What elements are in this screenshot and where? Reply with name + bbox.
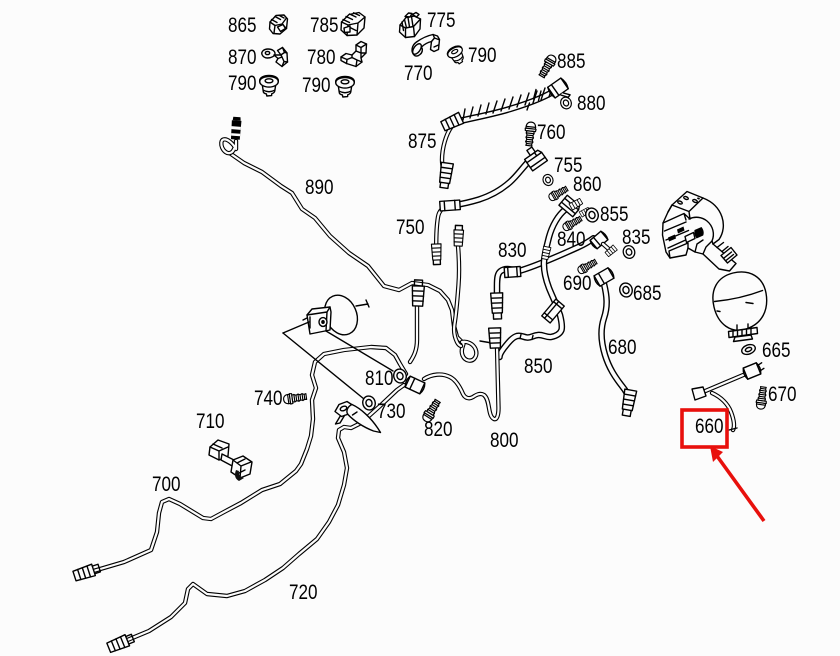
svg-text:890: 890	[305, 175, 334, 199]
svg-text:875: 875	[408, 129, 437, 153]
svg-text:730: 730	[377, 399, 406, 423]
svg-text:665: 665	[762, 338, 791, 362]
svg-text:740: 740	[254, 386, 283, 410]
svg-text:760: 760	[537, 120, 566, 144]
svg-text:790: 790	[228, 71, 257, 95]
svg-text:680: 680	[608, 335, 637, 359]
svg-text:690: 690	[563, 271, 592, 295]
svg-text:790: 790	[468, 43, 497, 67]
svg-text:700: 700	[152, 472, 181, 496]
svg-text:800: 800	[490, 428, 519, 452]
svg-text:850: 850	[524, 354, 553, 378]
svg-text:870: 870	[228, 45, 257, 69]
svg-text:785: 785	[310, 13, 339, 37]
svg-text:770: 770	[404, 61, 433, 85]
svg-text:835: 835	[622, 225, 651, 249]
svg-text:865: 865	[228, 13, 257, 37]
svg-text:685: 685	[633, 281, 662, 305]
svg-text:810: 810	[365, 366, 394, 390]
svg-text:710: 710	[196, 409, 225, 433]
svg-text:830: 830	[498, 238, 527, 262]
svg-text:885: 885	[557, 49, 586, 73]
svg-text:855: 855	[600, 202, 629, 226]
svg-text:670: 670	[768, 382, 797, 406]
svg-text:720: 720	[289, 580, 318, 604]
svg-text:775: 775	[427, 8, 456, 32]
svg-text:750: 750	[396, 215, 425, 239]
svg-text:660: 660	[695, 414, 724, 438]
svg-text:860: 860	[573, 172, 602, 196]
svg-text:840: 840	[557, 227, 586, 251]
svg-text:820: 820	[424, 417, 453, 441]
svg-text:880: 880	[577, 91, 606, 115]
svg-text:790: 790	[302, 73, 331, 97]
svg-text:780: 780	[307, 45, 336, 69]
